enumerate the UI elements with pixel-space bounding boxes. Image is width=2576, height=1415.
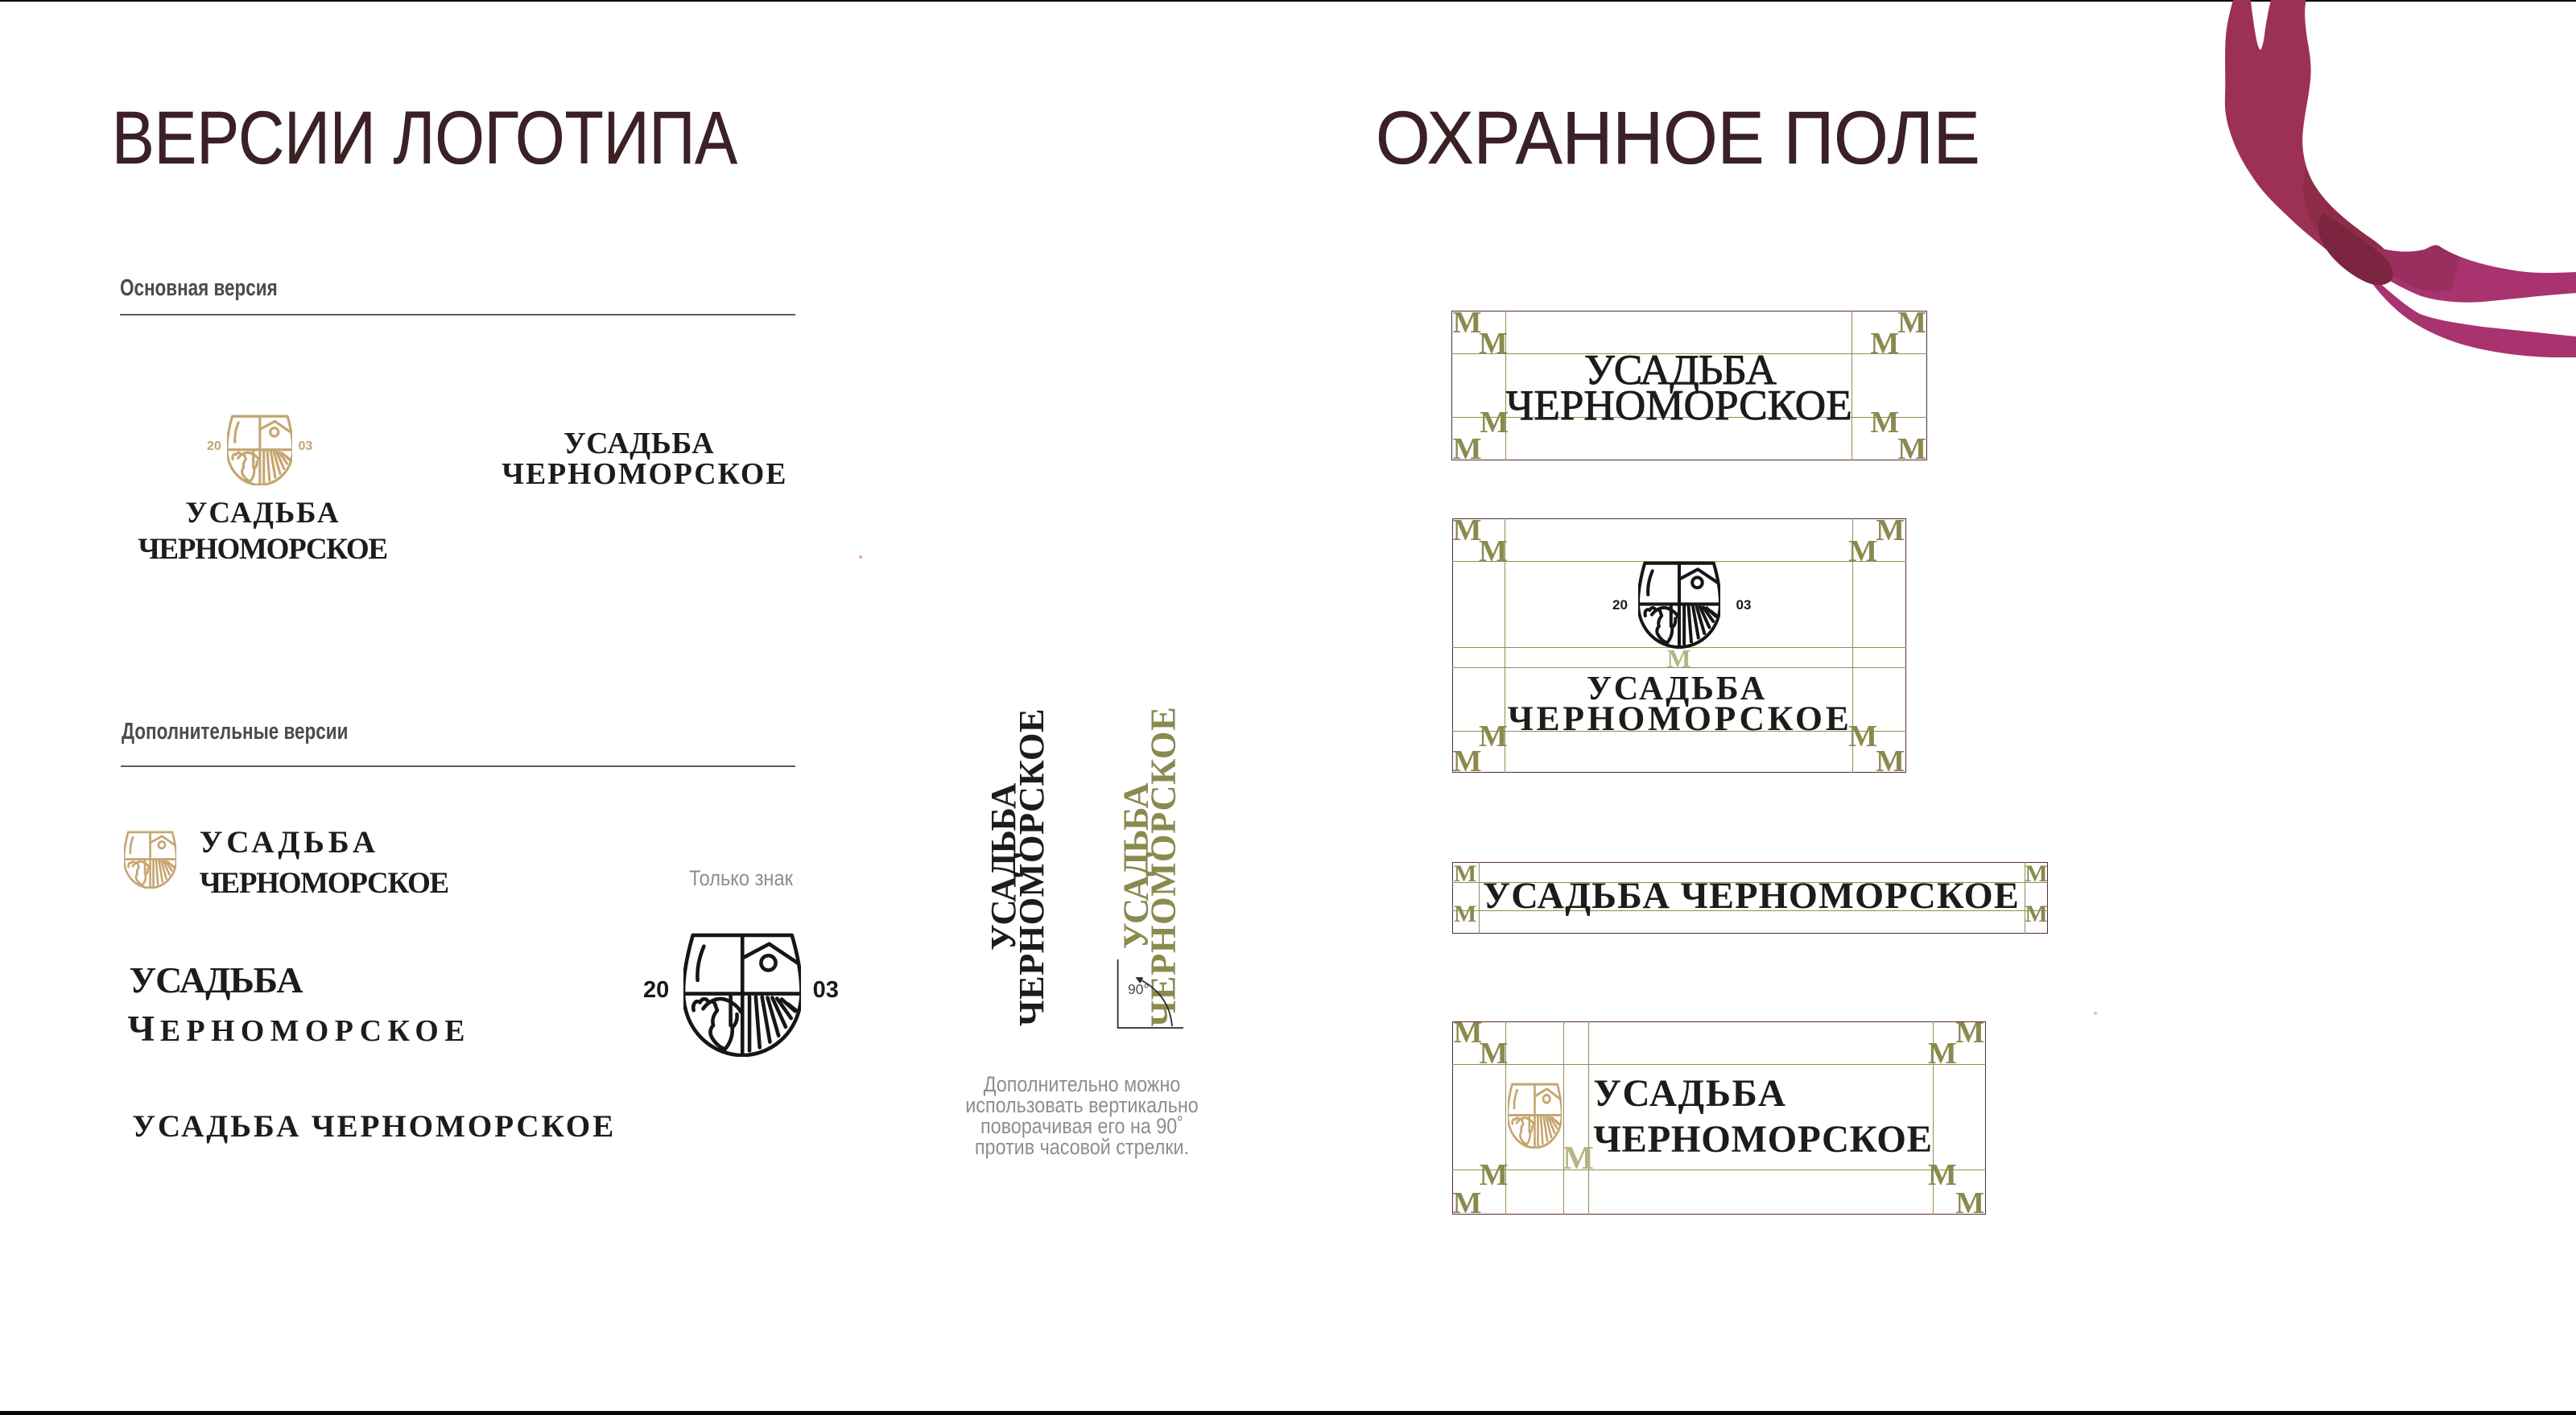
svg-text:90°: 90° [1128, 981, 1149, 997]
